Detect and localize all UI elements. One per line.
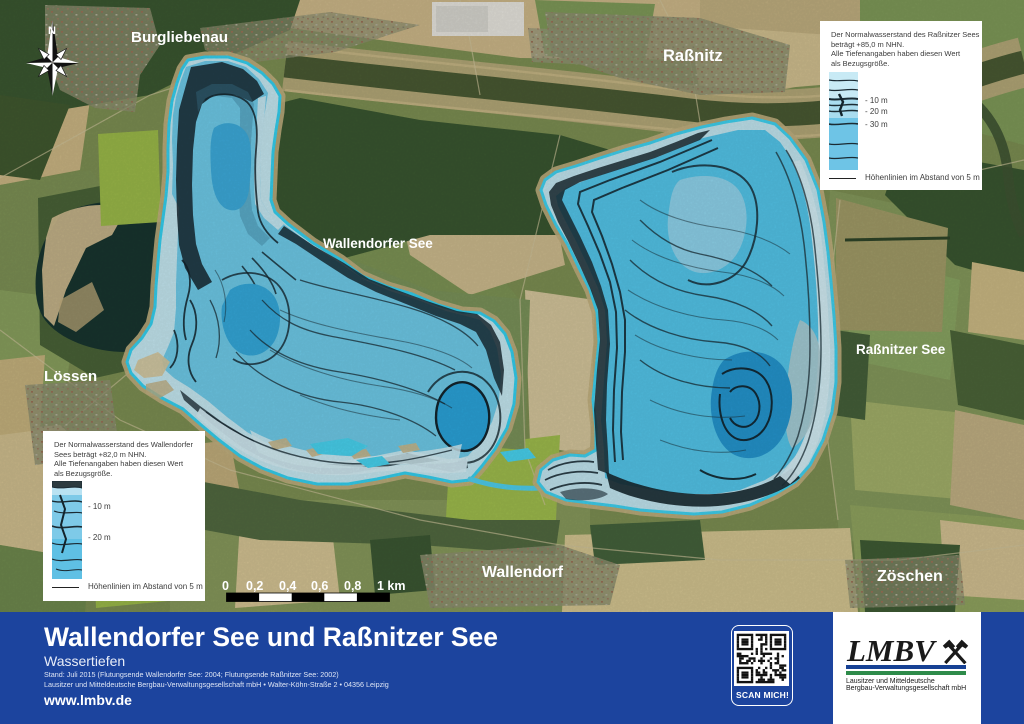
- svg-text:0: 0: [222, 579, 229, 593]
- svg-text:0,4: 0,4: [279, 579, 296, 593]
- svg-text:0,6: 0,6: [311, 579, 328, 593]
- svg-text:1 km: 1 km: [377, 579, 406, 593]
- svg-text:0,8: 0,8: [344, 579, 361, 593]
- svg-text:N: N: [48, 25, 56, 37]
- svg-text:0,2: 0,2: [246, 579, 263, 593]
